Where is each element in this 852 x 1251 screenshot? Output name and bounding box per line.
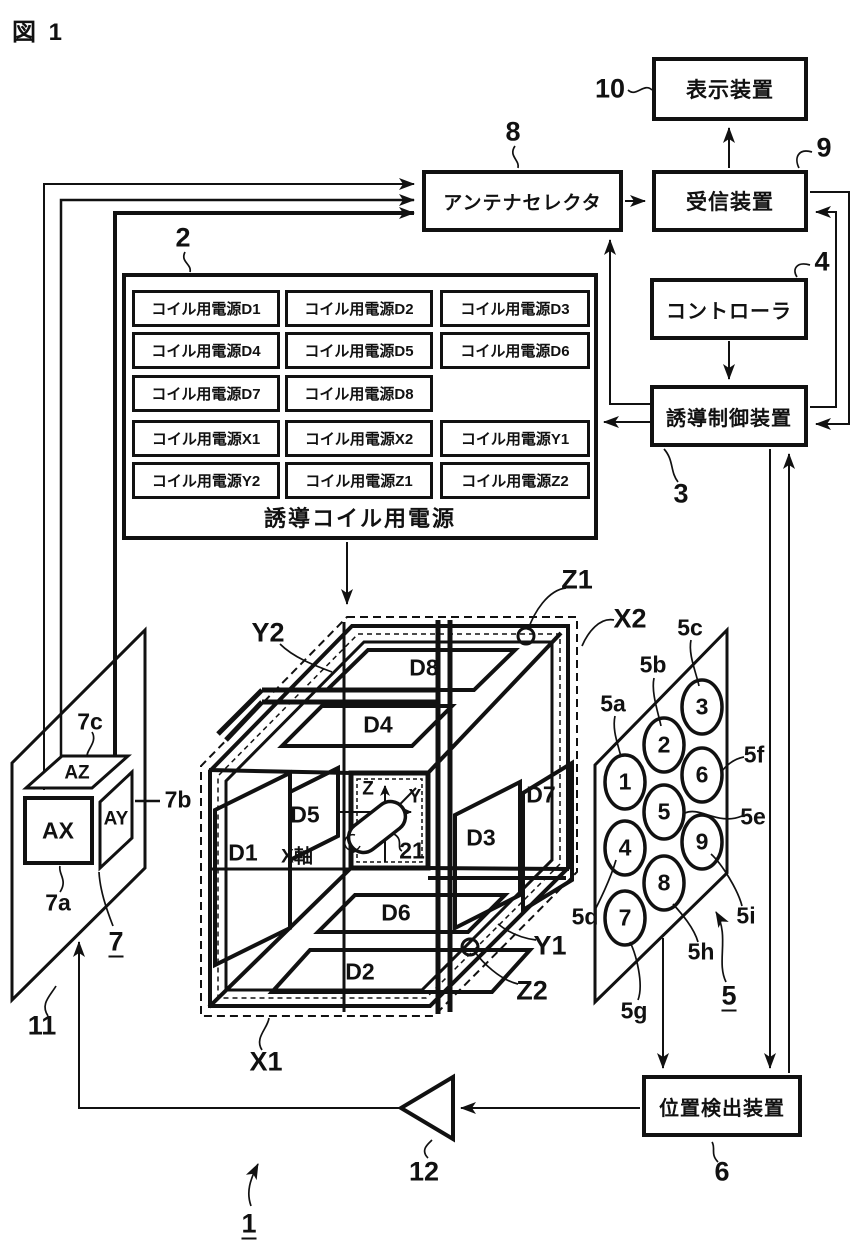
label-x1: X1 <box>249 1049 282 1076</box>
label-coil-d2: D2 <box>345 961 374 984</box>
antenna-digit-5: 5 <box>658 801 671 824</box>
receiver-to-guidance-loop <box>810 192 849 424</box>
antenna-digit-7: 7 <box>619 907 632 930</box>
ref-5a: 5a <box>600 693 626 716</box>
ref-2: 2 <box>175 225 190 252</box>
coil-power-z1: コイル用電源Z1 <box>285 462 433 499</box>
label-x-axis: X軸 <box>281 848 313 867</box>
antenna-digit-6: 6 <box>696 764 709 787</box>
antenna-selector-box: アンテナセレクタ <box>422 170 623 232</box>
amplifier-triangle <box>401 1077 453 1139</box>
guidance-control-box: 誘導制御装置 <box>650 385 808 447</box>
ref-5i: 5i <box>736 905 755 928</box>
ref-7: 7 <box>108 929 123 956</box>
coil-power-d2: コイル用電源D2 <box>285 290 433 327</box>
antenna-digit-2: 2 <box>658 734 671 757</box>
ref-5h: 5h <box>688 941 715 964</box>
coil-power-x1: コイル用電源X1 <box>132 420 280 457</box>
ref-5b: 5b <box>640 654 667 677</box>
ref-7b: 7b <box>165 789 192 812</box>
label-x2: X2 <box>613 606 646 633</box>
label-ay: AY <box>104 810 129 829</box>
ref-10: 10 <box>595 76 625 103</box>
antenna-digit-9: 9 <box>696 831 709 854</box>
ref-12: 12 <box>409 1159 439 1186</box>
label-coil-d8: D8 <box>409 657 438 680</box>
cube-edge-bl <box>209 868 351 1007</box>
display-device-box: 表示装置 <box>652 57 808 121</box>
label-z2: Z2 <box>516 978 548 1005</box>
label-coil-d1: D1 <box>228 842 257 865</box>
receiver-box: 受信装置 <box>652 170 808 232</box>
coil-power-d4: コイル用電源D4 <box>132 332 280 369</box>
ref-21: 21 <box>399 840 425 863</box>
label-az: AZ <box>64 764 89 783</box>
label-coil-d5: D5 <box>290 804 319 827</box>
label-z1: Z1 <box>561 567 593 594</box>
figure-title: 図 1 <box>12 12 65 47</box>
antenna-digit-4: 4 <box>619 837 632 860</box>
ref-5d: 5d <box>572 906 599 929</box>
label-coil-d6: D6 <box>381 902 410 925</box>
label-y1: Y1 <box>533 933 566 960</box>
label-coil-d7: D7 <box>526 784 555 807</box>
reference-leaders <box>45 88 812 1206</box>
coil-power-d6: コイル用電源D6 <box>440 332 590 369</box>
coil-power-d1: コイル用電源D1 <box>132 290 280 327</box>
position-detector-box: 位置検出装置 <box>642 1075 802 1137</box>
ref-9: 9 <box>816 135 831 162</box>
power-supply-caption: 誘導コイル用電源 <box>264 501 456 533</box>
coil-power-d8: コイル用電源D8 <box>285 375 433 412</box>
label-coil-d4: D4 <box>363 714 392 737</box>
ref-6: 6 <box>714 1159 729 1186</box>
guidance-to-receiver-loop <box>810 212 836 407</box>
coil-power-d5: コイル用電源D5 <box>285 332 433 369</box>
ref-5f: 5f <box>744 744 764 767</box>
coil-power-d7: コイル用電源D7 <box>132 375 280 412</box>
ref-11: 11 <box>28 1013 57 1040</box>
label-z-axis: Z <box>362 780 374 799</box>
coil-d3 <box>455 782 520 928</box>
ref-7c: 7c <box>77 711 103 734</box>
antenna-digit-1: 1 <box>619 771 632 794</box>
coil-d2 <box>272 950 530 992</box>
ref-4: 4 <box>814 249 829 276</box>
ref-3: 3 <box>673 481 688 508</box>
ref-5: 5 <box>721 983 736 1010</box>
label-y2: Y2 <box>251 620 284 647</box>
antenna-digit-3: 3 <box>696 696 709 719</box>
patent-figure: 図 1 表示装置 アンテナセレクタ 受信装置 コントローラ 誘導制御装置 位置検… <box>0 0 852 1251</box>
coil-power-x2: コイル用電源X2 <box>285 420 433 457</box>
coil-power-d3: コイル用電源D3 <box>440 290 590 327</box>
coil-power-y2: コイル用電源Y2 <box>132 462 280 499</box>
ref-5g: 5g <box>621 1000 648 1023</box>
label-coil-d3: D3 <box>466 827 495 850</box>
coil-power-z2: コイル用電源Z2 <box>440 462 590 499</box>
label-y-axis: Y <box>409 788 422 807</box>
ref-7a: 7a <box>45 892 71 915</box>
label-ax: AX <box>42 820 74 843</box>
ref-8: 8 <box>505 119 520 146</box>
coil-cube <box>201 617 577 1016</box>
antenna-digit-8: 8 <box>658 872 671 895</box>
coil-power-y1: コイル用電源Y1 <box>440 420 590 457</box>
ref-5c: 5c <box>677 617 703 640</box>
coil-d6 <box>318 895 505 932</box>
ref-1: 1 <box>241 1211 256 1238</box>
guidance-to-selector <box>610 240 650 404</box>
controller-box: コントローラ <box>650 278 808 340</box>
ref-5e: 5e <box>740 806 766 829</box>
